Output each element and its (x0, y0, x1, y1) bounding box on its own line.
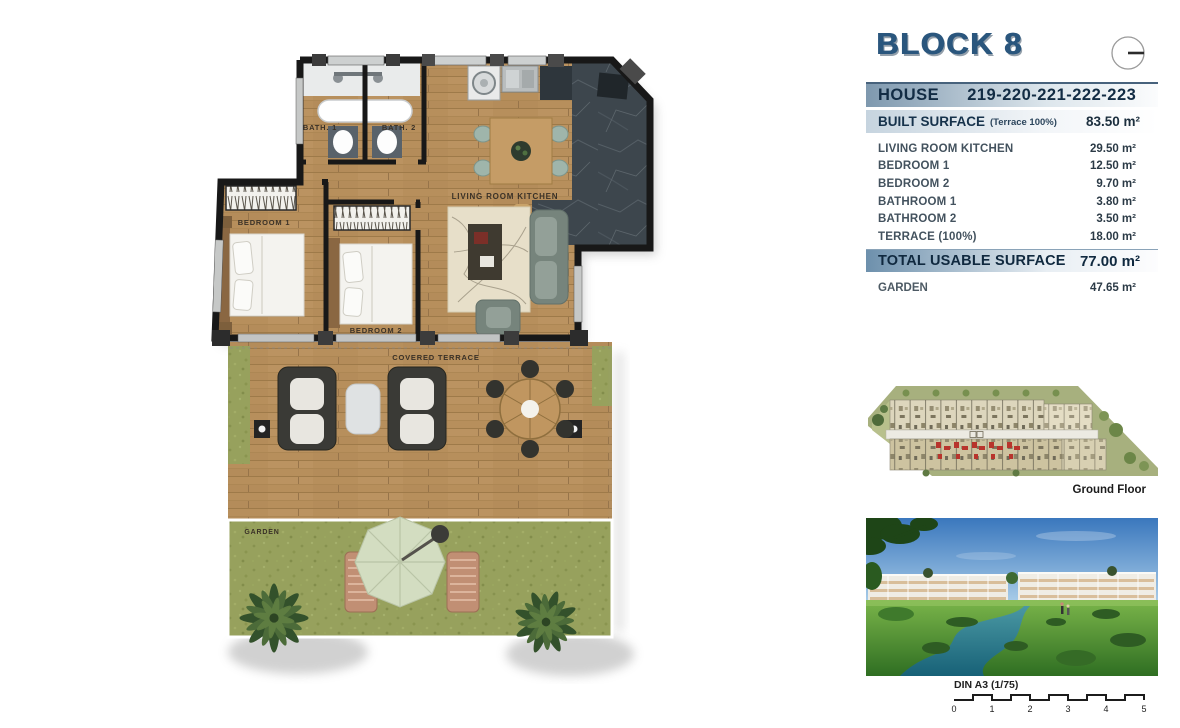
row-value: 18.00 m² (1090, 231, 1158, 243)
block-title: BLOCK 8 (876, 26, 1023, 62)
scale-bar: DIN A3 (1/75) 0 1 2 3 4 5 (948, 674, 1160, 718)
table-row: LIVING ROOM KITCHEN 29.50 m² (866, 140, 1158, 158)
built-surface-note: (Terrace 100%) (990, 117, 1057, 128)
garden-row: GARDEN 47.65 m² (866, 280, 1158, 296)
row-value: 29.50 m² (1090, 143, 1158, 155)
bedroom-2-furniture (328, 206, 412, 328)
bedroom2-label: BEDROOM 2 (350, 326, 403, 335)
north-indicator-icon (1106, 31, 1150, 75)
living-label: LIVING ROOM KITCHEN (452, 192, 559, 201)
development-photo (866, 518, 1158, 676)
scale-tick: 2 (1027, 704, 1032, 714)
garden-value: 47.65 m² (1090, 282, 1158, 294)
bedroom-1-furniture (218, 186, 304, 334)
bath2-label: BATH. 2 (382, 123, 416, 132)
row-label: BEDROOM 2 (866, 178, 949, 190)
row-label: BATHROOM 1 (866, 196, 956, 208)
garden-label: GARDEN (244, 529, 279, 536)
scale-tick: 1 (989, 704, 994, 714)
total-value: 77.00 m² (1080, 253, 1158, 270)
total-surface-bar: TOTAL USABLE SURFACE 77.00 m² (866, 249, 1158, 272)
built-surface-value: 83.50 m² (1086, 114, 1158, 129)
scale-tick: 3 (1065, 704, 1070, 714)
row-label: BEDROOM 1 (866, 160, 949, 172)
table-row: BATHROOM 2 3.50 m² (866, 210, 1158, 228)
scale-tick: 4 (1103, 704, 1108, 714)
area-table: LIVING ROOM KITCHEN 29.50 m² BEDROOM 1 1… (866, 140, 1158, 246)
covered-terrace-label: COVERED TERRACE (392, 353, 479, 362)
plan-sheet: BATH. 1 BATH. 2 BEDROOM 1 BEDROOM 2 LIVI… (0, 0, 1180, 728)
scale-tick: 5 (1141, 704, 1146, 714)
bedroom1-label: BEDROOM 1 (238, 218, 291, 227)
table-row: TERRACE (100%) 18.00 m² (866, 228, 1158, 246)
row-value: 12.50 m² (1090, 160, 1158, 172)
house-header-bar: HOUSE 219-220-221-222-223 (866, 82, 1158, 107)
row-value: 3.80 m² (1096, 196, 1158, 208)
site-building (872, 400, 1106, 470)
row-label: TERRACE (100%) (866, 231, 977, 243)
bath1-label: BATH. 1 (303, 123, 337, 132)
table-row: BEDROOM 1 12.50 m² (866, 158, 1158, 176)
garden (228, 517, 634, 676)
total-label: TOTAL USABLE SURFACE (866, 253, 1066, 269)
scale-ruler (954, 695, 1144, 700)
scale-tick: 0 (951, 704, 956, 714)
garden-label: GARDEN (866, 282, 928, 294)
floorplan-drawing: BATH. 1 BATH. 2 BEDROOM 1 BEDROOM 2 LIVI… (178, 12, 678, 684)
site-plan: Ground Floor (866, 372, 1160, 498)
house-label: HOUSE (866, 86, 939, 105)
scale-label: DIN A3 (1/75) (954, 679, 1018, 691)
built-surface-label: BUILT SURFACE (866, 114, 985, 129)
house-numbers: 219-220-221-222-223 (967, 86, 1136, 105)
ground-floor-caption: Ground Floor (1073, 484, 1147, 496)
row-value: 3.50 m² (1096, 213, 1158, 225)
row-label: BATHROOM 2 (866, 213, 956, 225)
table-row: BEDROOM 2 9.70 m² (866, 175, 1158, 193)
row-value: 9.70 m² (1096, 178, 1158, 190)
terrace-furniture (254, 360, 582, 458)
row-label: LIVING ROOM KITCHEN (866, 143, 1013, 155)
table-row: BATHROOM 1 3.80 m² (866, 193, 1158, 211)
built-surface-bar: BUILT SURFACE (Terrace 100%) 83.50 m² (866, 110, 1158, 133)
